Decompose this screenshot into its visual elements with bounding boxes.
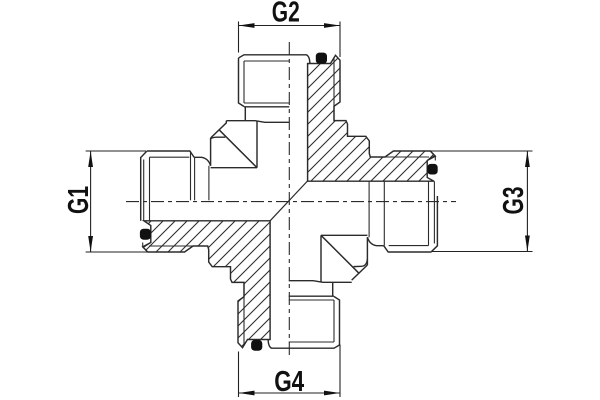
svg-text:G2: G2 [272, 0, 300, 28]
svg-text:G4: G4 [274, 366, 304, 398]
svg-text:G3: G3 [498, 187, 530, 215]
svg-text:G1: G1 [63, 186, 95, 214]
